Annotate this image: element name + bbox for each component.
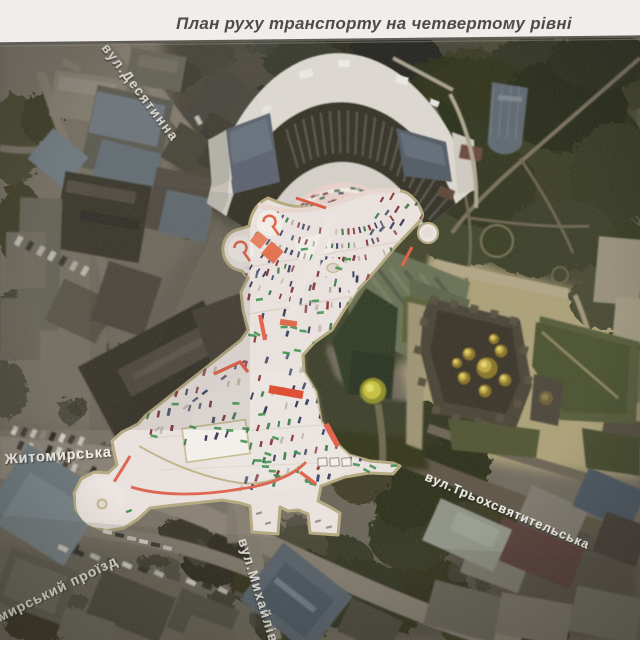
svg-text:План руху транспорту на четвер: План руху транспорту на четвертому рівні (176, 14, 572, 33)
